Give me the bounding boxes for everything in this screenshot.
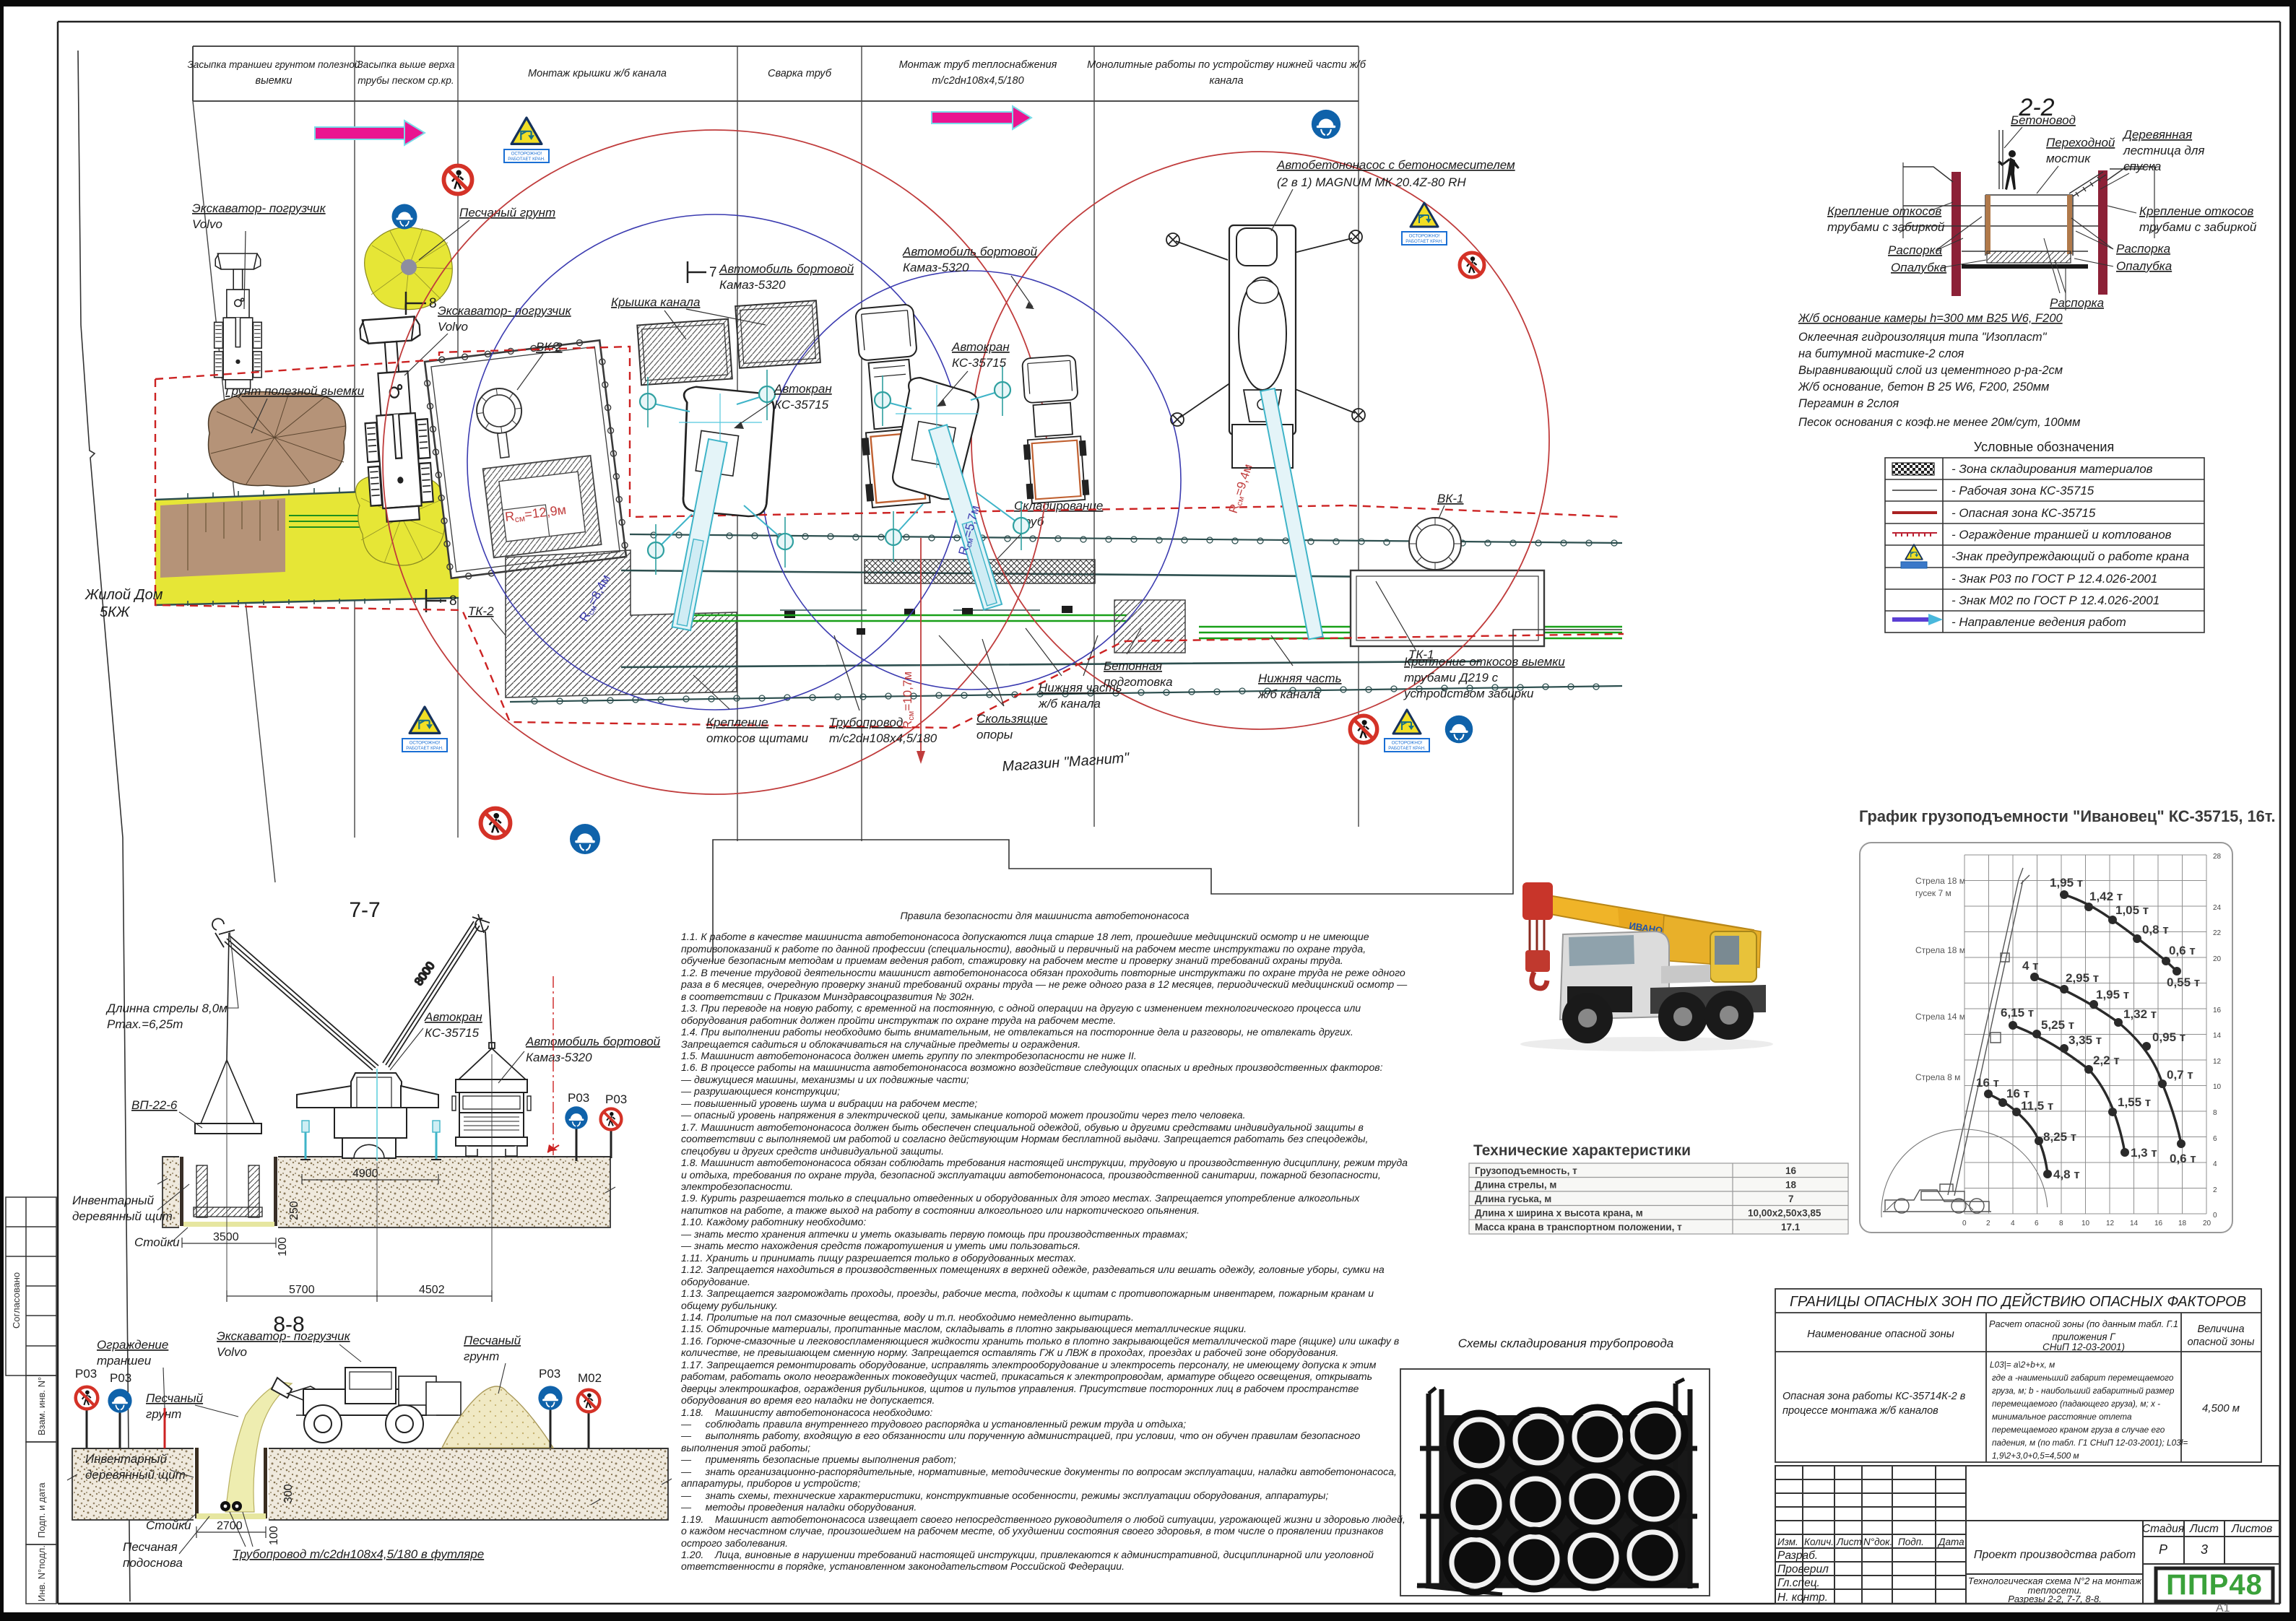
svg-text:18: 18 <box>2178 1220 2187 1227</box>
svg-text:Стойки: Стойки <box>146 1518 191 1532</box>
svg-text:16 т: 16 т <box>1976 1076 1999 1090</box>
svg-text:5700: 5700 <box>289 1284 315 1296</box>
svg-text:Автомобиль бортовой: Автомобиль бортовой <box>719 262 854 276</box>
svg-text:1,42 т: 1,42 т <box>2089 890 2123 903</box>
svg-text:5КЖ: 5КЖ <box>100 604 131 620</box>
svg-text:Крепление откосов: Крепление откосов <box>1827 204 1941 218</box>
svg-text:Р03: Р03 <box>605 1092 627 1106</box>
svg-text:График грузоподъемности "Иван: График грузоподъемности "Ивановец" КС-35… <box>1859 807 2276 825</box>
svg-text:2,95 т: 2,95 т <box>2066 971 2099 985</box>
svg-text:250: 250 <box>288 1201 300 1220</box>
svg-text:Скользящие: Скользящие <box>976 712 1047 726</box>
svg-text:где а -наименьший габарит пере: где а -наименьший габарит перемещаемого <box>1992 1373 2174 1383</box>
svg-text:Трубопровод: Трубопровод <box>829 716 903 729</box>
svg-text:Условные обозначения: Условные обозначения <box>1974 440 2114 454</box>
svg-text:ж/б канала: ж/б канала <box>1257 687 1320 701</box>
svg-text:6: 6 <box>2213 1135 2217 1143</box>
svg-text:1,32 т: 1,32 т <box>2123 1007 2157 1021</box>
svg-text:Volvo: Volvo <box>438 320 468 334</box>
svg-text:Автокран: Автокран <box>951 340 1010 354</box>
svg-text:Монтаж труб теплоснабжения: Монтаж труб теплоснабжения <box>899 59 1057 71</box>
svg-text:4900: 4900 <box>352 1168 378 1180</box>
svg-text:20: 20 <box>2203 1220 2211 1227</box>
svg-text:Инвентарный: Инвентарный <box>72 1194 155 1207</box>
svg-text:-Знак предупреждающий о работе: -Знак предупреждающий о работе крана <box>1951 549 2189 563</box>
svg-text:М02: М02 <box>578 1371 602 1385</box>
svg-text:Р03: Р03 <box>110 1371 131 1385</box>
svg-text:5,25 т: 5,25 т <box>2041 1018 2074 1032</box>
svg-text:Камаз-5320: Камаз-5320 <box>526 1051 592 1064</box>
svg-text:3: 3 <box>2201 1542 2208 1557</box>
svg-text:минимальное расстояние отлета: минимальное расстояние отлета <box>1992 1412 2132 1422</box>
svg-text:Взам. инв. N°: Взам. инв. N° <box>36 1377 47 1435</box>
svg-text:Стрела 18 м: Стрела 18 м <box>1915 945 1965 955</box>
svg-text:10,00х2,50х3,85: 10,00х2,50х3,85 <box>1748 1208 1821 1219</box>
svg-text:300: 300 <box>282 1484 295 1503</box>
svg-text:Опасная зона работы КС-35714К-: Опасная зона работы КС-35714К-2 в <box>1782 1391 1966 1402</box>
svg-text:10: 10 <box>2213 1083 2222 1091</box>
svg-text:100: 100 <box>277 1237 289 1256</box>
svg-text:1,55 т: 1,55 т <box>2118 1095 2151 1109</box>
svg-text:Деревянная: Деревянная <box>2122 128 2192 142</box>
svg-text:Сварка труб: Сварка труб <box>768 68 832 79</box>
svg-text:Грузоподъемность, т: Грузоподъемность, т <box>1475 1165 1577 1176</box>
svg-text:деревянный щит: деревянный щит <box>72 1209 173 1223</box>
svg-text:Опалубка: Опалубка <box>2116 259 2172 273</box>
svg-text:4,8 т: 4,8 т <box>2053 1168 2080 1181</box>
svg-text:траншеи: траншеи <box>97 1354 152 1368</box>
svg-text:Монтаж крышки ж/б канала: Монтаж крышки ж/б канала <box>528 68 667 79</box>
svg-text:- Знак Р03 по ГОСТ Р 12.4.026-: - Знак Р03 по ГОСТ Р 12.4.026-2001 <box>1951 572 2157 586</box>
svg-text:24: 24 <box>2213 904 2222 912</box>
svg-text:Р03: Р03 <box>75 1367 97 1381</box>
svg-text:0,55 т: 0,55 т <box>2167 975 2200 989</box>
svg-text:Пергамин в 2слоя: Пергамин в 2слоя <box>1798 397 1899 410</box>
svg-text:Pmax.=6,25m: Pmax.=6,25m <box>107 1017 183 1031</box>
svg-text:Стадия: Стадия <box>2142 1523 2184 1535</box>
svg-text:7: 7 <box>709 265 717 280</box>
svg-text:Стрела 14 м: Стрела 14 м <box>1915 1012 1965 1022</box>
svg-text:Расчет опасной зоны (по данным: Расчет опасной зоны (по данным табл. Г.1 <box>1989 1318 2178 1329</box>
svg-text:Лист: Лист <box>1836 1537 1862 1547</box>
svg-text:гусек 7 м: гусек 7 м <box>1915 888 1951 898</box>
svg-text:ВК-1: ВК-1 <box>1437 492 1463 505</box>
svg-text:Стойки: Стойки <box>134 1235 180 1249</box>
svg-text:Изм.: Изм. <box>1777 1537 1798 1547</box>
svg-text:ППР48: ППР48 <box>2166 1569 2263 1601</box>
svg-text:Масса крана в транспортном пол: Масса крана в транспортном положении, т <box>1475 1222 1682 1233</box>
svg-text:1,9\2+3,0+0,5=4,500 м: 1,9\2+3,0+0,5=4,500 м <box>1992 1451 2079 1461</box>
svg-text:Засыпка выше верха: Засыпка выше верха <box>357 59 455 70</box>
svg-text:Монолитные работы по устройств: Монолитные работы по устройству нижней ч… <box>1087 59 1366 71</box>
svg-text:0,95 т: 0,95 т <box>2152 1030 2185 1044</box>
svg-text:Песчаный: Песчаный <box>146 1391 204 1405</box>
svg-text:0: 0 <box>1962 1220 1967 1227</box>
svg-text:2: 2 <box>2213 1186 2217 1194</box>
svg-text:0,8 т: 0,8 т <box>2142 923 2169 936</box>
svg-text:Р03: Р03 <box>568 1091 589 1105</box>
svg-text:Длина гуська, м: Длина гуська, м <box>1475 1194 1551 1204</box>
svg-text:Автомобиль бортовой: Автомобиль бортовой <box>902 245 1038 258</box>
svg-text:Дата: Дата <box>1937 1537 1964 1547</box>
svg-text:грунт: грунт <box>464 1350 499 1363</box>
svg-text:8,25 т: 8,25 т <box>2043 1130 2076 1144</box>
svg-text:100: 100 <box>268 1526 280 1545</box>
svg-text:Камаз-5320: Камаз-5320 <box>719 278 786 292</box>
svg-text:0,7 т: 0,7 т <box>2167 1068 2193 1082</box>
svg-text:трубами с забиркой: трубами с забиркой <box>1827 220 1945 234</box>
svg-text:2,2 т: 2,2 т <box>2093 1053 2120 1067</box>
svg-text:28: 28 <box>2213 853 2222 861</box>
svg-text:12: 12 <box>2106 1220 2115 1227</box>
svg-text:Гл.спец.: Гл.спец. <box>1777 1577 1820 1589</box>
svg-text:Выравнивающий слой из цемен: Выравнивающий слой из цементного р-ра-2с… <box>1798 364 2063 377</box>
svg-text:Автокран: Автокран <box>424 1010 482 1024</box>
svg-text:Бетоновод: Бетоновод <box>2011 113 2076 127</box>
svg-text:Жилой Дом: Жилой Дом <box>85 587 163 603</box>
svg-text:Rсм=9,4м: Rсм=9,4м <box>1226 462 1257 516</box>
svg-text:ВК-2: ВК-2 <box>536 340 563 354</box>
svg-text:устройством забирки: устройством забирки <box>1403 687 1534 700</box>
svg-text:7: 7 <box>1788 1194 1794 1204</box>
svg-text:Величина: Величина <box>2197 1324 2244 1335</box>
svg-text:подготовка: подготовка <box>1104 675 1173 689</box>
svg-text:КС-35715: КС-35715 <box>425 1026 480 1040</box>
svg-text:Трубопровод m/c2dн108x4,5/180: Трубопровод m/c2dн108x4,5/180 в футляре <box>233 1547 484 1561</box>
svg-text:процессе монтажа ж/б каналов: процессе монтажа ж/б каналов <box>1782 1405 1938 1417</box>
svg-text:m/c2dн108x4,5/180: m/c2dн108x4,5/180 <box>829 731 937 745</box>
svg-text:8: 8 <box>429 296 437 311</box>
svg-text:Проверил: Проверил <box>1777 1563 1829 1576</box>
svg-text:Нижняя часть: Нижняя часть <box>1258 672 1342 685</box>
svg-text:Песок основания с коэф.не: Песок основания с коэф.не менее 20м/сут,… <box>1798 416 2080 429</box>
svg-text:СНиП 12-03-2001): СНиП 12-03-2001) <box>2042 1342 2125 1352</box>
svg-text:Автомобиль бортовой: Автомобиль бортовой <box>525 1035 661 1048</box>
svg-text:22: 22 <box>2213 929 2222 937</box>
svg-text:Стрела 8 м: Стрела 8 м <box>1915 1072 1960 1082</box>
svg-text:Оклеечная гидроизоляция типа: Оклеечная гидроизоляция типа "Изопласт" <box>1798 331 2048 344</box>
svg-text:откосов щитами: откосов щитами <box>706 731 809 745</box>
svg-text:4: 4 <box>2213 1160 2217 1168</box>
svg-text:20: 20 <box>2213 955 2222 963</box>
svg-text:4,500 м: 4,500 м <box>2202 1402 2240 1414</box>
svg-text:Р03: Р03 <box>539 1367 560 1381</box>
svg-text:8: 8 <box>449 594 457 609</box>
svg-text:Проект производства работ: Проект производства работ <box>1974 1549 2136 1561</box>
svg-text:Экскаватор- погрузчик: Экскаватор- погрузчик <box>192 201 326 215</box>
svg-text:Крепление откосов выемки: Крепление откосов выемки <box>1404 655 1565 669</box>
svg-text:2700: 2700 <box>217 1520 243 1532</box>
svg-text:8: 8 <box>2059 1220 2063 1227</box>
svg-text:16: 16 <box>2154 1220 2163 1227</box>
svg-text:- Опасная зона КС-35715: - Опасная зона КС-35715 <box>1951 506 2096 520</box>
svg-text:- Знак М02 по ГОСТ Р 12.4.026-: - Знак М02 по ГОСТ Р 12.4.026-2001 <box>1951 594 2159 607</box>
svg-text:4502: 4502 <box>419 1284 445 1296</box>
svg-text:Засыпка траншеи грунтом полезн: Засыпка траншеи грунтом полезной <box>188 59 360 70</box>
svg-text:Опалубка: Опалубка <box>1891 261 1946 274</box>
svg-text:КС-35715: КС-35715 <box>952 356 1007 370</box>
svg-text:ВП-22-6: ВП-22-6 <box>131 1098 178 1112</box>
svg-text:- Рабочая зона КС-35715: - Рабочая зона КС-35715 <box>1951 484 2094 497</box>
svg-text:Технические характеристики: Технические характеристики <box>1473 1142 1691 1159</box>
svg-text:Песчаная: Песчаная <box>123 1540 178 1554</box>
svg-text:Подп.: Подп. <box>1898 1537 1924 1547</box>
svg-text:лестница для: лестница для <box>2123 144 2204 157</box>
svg-text:3,35 т: 3,35 т <box>2068 1033 2102 1047</box>
svg-text:0: 0 <box>2213 1212 2217 1220</box>
svg-text:7-7: 7-7 <box>349 898 380 922</box>
svg-text:А1: А1 <box>2216 1602 2230 1615</box>
svg-text:1,95 т: 1,95 т <box>2096 988 2129 1001</box>
svg-text:14: 14 <box>2130 1220 2139 1227</box>
svg-text:Длина стрелы, м: Длина стрелы, м <box>1475 1180 1556 1191</box>
svg-text:приложения Г: приложения Г <box>2052 1331 2116 1342</box>
svg-text:1,3 т: 1,3 т <box>2131 1146 2157 1160</box>
svg-text:Крепление: Крепление <box>706 716 768 729</box>
svg-text:мостик: мостик <box>2046 152 2091 165</box>
svg-text:Переходной: Переходной <box>2046 136 2115 149</box>
svg-text:трубами с забиркой: трубами с забиркой <box>2139 220 2257 234</box>
svg-text:деревянный щит: деревянный щит <box>85 1468 186 1482</box>
svg-text:Лист: Лист <box>2189 1523 2219 1535</box>
svg-text:Volvo: Volvo <box>217 1345 247 1359</box>
svg-text:6: 6 <box>2035 1220 2039 1227</box>
svg-text:6,15 т: 6,15 т <box>2001 1006 2034 1020</box>
svg-text:КС-35715: КС-35715 <box>774 398 829 412</box>
svg-text:16: 16 <box>2213 1007 2222 1014</box>
svg-text:17.1: 17.1 <box>1781 1222 1801 1233</box>
svg-text:L03|= a\2+b+x, м: L03|= a\2+b+x, м <box>1990 1360 2055 1370</box>
svg-text:10: 10 <box>2081 1220 2090 1227</box>
svg-text:Песчаный: Песчаный <box>464 1334 521 1347</box>
svg-text:- Направление ведения работ: - Направление ведения работ <box>1951 615 2126 629</box>
svg-text:ТК-2: ТК-2 <box>468 604 494 618</box>
svg-text:Крышка канала: Крышка канала <box>611 295 700 309</box>
svg-text:Колич.: Колич. <box>1804 1537 1834 1547</box>
svg-text:18: 18 <box>1785 1180 1797 1191</box>
svg-text:Магазин "Магнит": Магазин "Магнит" <box>1002 750 1130 775</box>
svg-text:N°док.: N°док. <box>1863 1537 1892 1547</box>
svg-text:11,5 т: 11,5 т <box>2021 1099 2053 1113</box>
svg-text:Распорка: Распорка <box>2050 296 2104 310</box>
svg-text:Экскаватор- погрузчик: Экскаватор- погрузчик <box>217 1329 351 1343</box>
svg-text:14: 14 <box>2213 1032 2222 1040</box>
svg-text:выемки: выемки <box>256 75 293 87</box>
svg-text:Volvo: Volvo <box>192 217 222 231</box>
svg-text:ГРАНИЦЫ ОПАСНЫХ ЗОН ПО ДЕЙСТВИ: ГРАНИЦЫ ОПАСНЫХ ЗОН ПО ДЕЙСТВИЮ ОПАСНЫХ … <box>1790 1293 2246 1310</box>
svg-text:опоры: опоры <box>976 728 1013 742</box>
svg-text:Распорка: Распорка <box>1888 243 1942 257</box>
svg-text:падения, м (по табл. Г1 СНиП 1: падения, м (по табл. Г1 СНиП 12-03-2001)… <box>1992 1438 2188 1448</box>
svg-text:2: 2 <box>1986 1220 1990 1227</box>
svg-text:трубами Д219 с: трубами Д219 с <box>1404 671 1499 685</box>
svg-text:Экскаватор- погрузчик: Экскаватор- погрузчик <box>438 304 572 318</box>
svg-text:опасной зоны: опасной зоны <box>2188 1337 2255 1348</box>
svg-text:3500: 3500 <box>213 1231 239 1243</box>
svg-text:Песчаный грунт: Песчаный грунт <box>459 206 555 220</box>
svg-text:(2 в 1) MAGNUM МК 20.4Z-8: (2 в 1) MAGNUM МК 20.4Z-80 RH <box>1277 175 1466 189</box>
svg-text:перемещаемого (падающего груза: перемещаемого (падающего груза), м; х - <box>1992 1399 2160 1409</box>
svg-text:Длина х ширина х высота крана,: Длина х ширина х высота крана, м <box>1475 1208 1643 1219</box>
svg-text:груза, м; b - наибольший габар: груза, м; b - наибольший габаритный разм… <box>1992 1386 2175 1396</box>
svg-text:Наименование опасной зоны: Наименование опасной зоны <box>1807 1328 1954 1340</box>
svg-text:1,05 т: 1,05 т <box>2115 903 2149 917</box>
svg-text:Разрезы 2-2, 7-7, 8-8.: Разрезы 2-2, 7-7, 8-8. <box>2008 1594 2102 1604</box>
svg-text:0,6 т: 0,6 т <box>2169 944 2196 957</box>
svg-text:Длинна стрелы 8,0м: Длинна стрелы 8,0м <box>105 1001 228 1015</box>
svg-text:канала: канала <box>1209 75 1243 87</box>
svg-text:Бетонная: Бетонная <box>1104 659 1162 673</box>
svg-text:Камаз-5320: Камаз-5320 <box>903 261 969 274</box>
svg-text:4: 4 <box>2011 1220 2015 1227</box>
svg-text:- Ограждение траншей и котлова: - Ограждение траншей и котлованов <box>1951 528 2172 542</box>
svg-text:Н. контр.: Н. контр. <box>1777 1591 1828 1604</box>
svg-text:Ограждение: Ограждение <box>97 1338 168 1352</box>
svg-text:8: 8 <box>2213 1109 2217 1117</box>
svg-text:ж/б канала: ж/б канала <box>1038 697 1101 710</box>
svg-text:Крепление откосов: Крепление откосов <box>2139 204 2253 218</box>
svg-text:трубы песком ср.кр.: трубы песком ср.кр. <box>358 75 454 86</box>
svg-text:на битумной мастике-2 слоя: на битумной мастике-2 слоя <box>1798 347 1964 360</box>
svg-text:Распорка: Распорка <box>2116 242 2170 256</box>
svg-text:Разраб.: Разраб. <box>1777 1550 1818 1562</box>
svg-text:подоснова: подоснова <box>123 1556 183 1570</box>
svg-text:Инвентарный: Инвентарный <box>85 1452 168 1466</box>
svg-text:Стрела 18 м: Стрела 18 м <box>1915 876 1965 886</box>
svg-text:16: 16 <box>1785 1165 1797 1176</box>
svg-text:Листов: Листов <box>2231 1523 2272 1535</box>
svg-text:Схемы складирования трубопро: Схемы складирования трубопровода <box>1458 1337 1673 1350</box>
svg-text:Согласовано: Согласовано <box>11 1272 22 1329</box>
svg-text:Подп. и дата: Подп. и дата <box>36 1482 47 1538</box>
svg-text:Автобетононасос с бетоносмес: Автобетононасос с бетоносмесителем <box>1276 158 1515 172</box>
svg-text:Ж/б основание камеры h=300: Ж/б основание камеры h=300 мм В25 W6, F2… <box>1798 312 2063 325</box>
svg-text:Автокран: Автокран <box>774 382 832 396</box>
svg-text:0,6 т: 0,6 т <box>2170 1152 2196 1165</box>
svg-text:Инв. N°подл.: Инв. N°подл. <box>36 1545 47 1602</box>
svg-text:- Зона складирования материало: - Зона складирования материалов <box>1951 462 2153 476</box>
svg-text:перемещаемого краном груза в с: перемещаемого краном груза в случае его <box>1992 1425 2165 1435</box>
svg-text:12: 12 <box>2213 1058 2222 1066</box>
svg-text:Ж/б основание, бетон В 25: Ж/б основание, бетон В 25 W6, F200, 250м… <box>1798 381 2049 394</box>
svg-text:1,95 т: 1,95 т <box>2050 876 2083 890</box>
svg-text:спуска: спуска <box>2123 160 2161 173</box>
svg-text:Р: Р <box>2159 1542 2167 1557</box>
svg-text:m/c2dн108x4,5/180: m/c2dн108x4,5/180 <box>932 75 1023 87</box>
svg-text:4 т: 4 т <box>2022 959 2039 973</box>
